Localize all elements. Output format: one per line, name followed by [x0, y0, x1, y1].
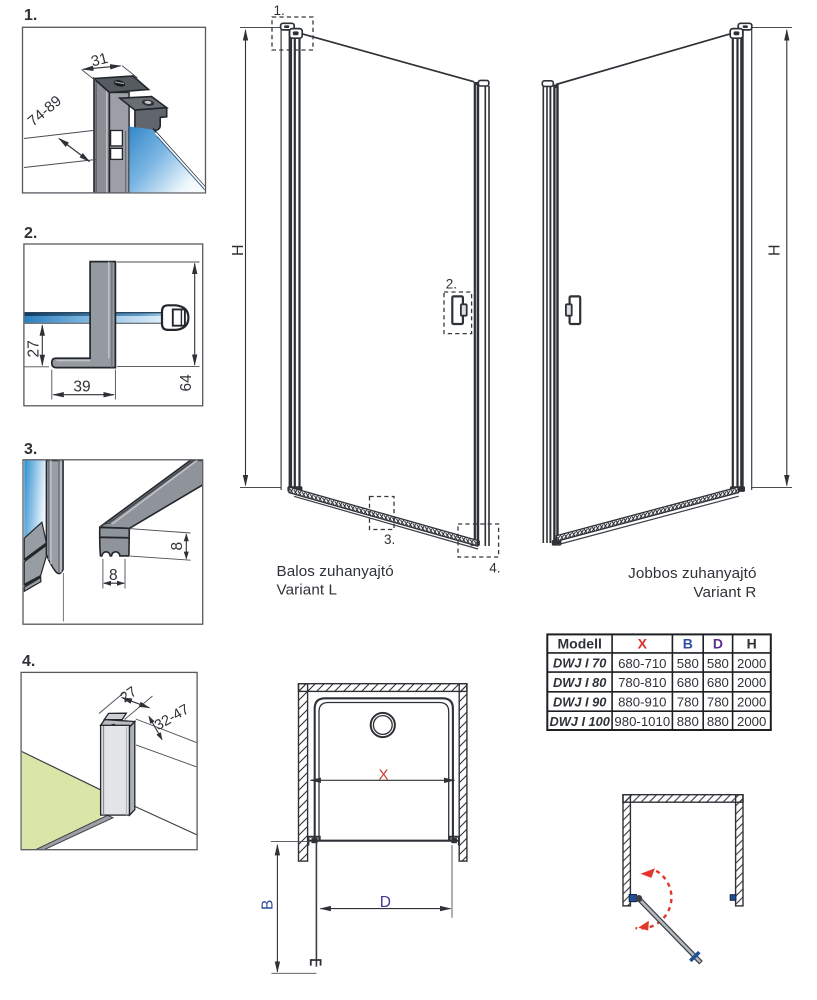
svg-text:Jobbos zuhanyajtó: Jobbos zuhanyajtó — [628, 565, 756, 582]
svg-text:2000: 2000 — [737, 675, 766, 690]
svg-text:X: X — [379, 767, 389, 784]
svg-text:H: H — [230, 244, 247, 256]
svg-text:4.: 4. — [489, 561, 500, 576]
svg-text:2.: 2. — [24, 225, 37, 242]
svg-text:DWJ I 100: DWJ I 100 — [549, 714, 609, 729]
svg-text:1.: 1. — [24, 7, 37, 24]
svg-text:64: 64 — [178, 374, 195, 392]
svg-text:D: D — [713, 636, 723, 652]
svg-text:2.: 2. — [446, 277, 457, 292]
svg-text:DWJ I 90: DWJ I 90 — [553, 695, 606, 710]
svg-text:980-1010: 980-1010 — [614, 714, 670, 729]
svg-text:680-710: 680-710 — [618, 656, 666, 671]
svg-text:880: 880 — [677, 714, 699, 729]
svg-text:2000: 2000 — [737, 656, 766, 671]
svg-text:DWJ I 80: DWJ I 80 — [553, 675, 606, 690]
svg-text:580: 580 — [677, 656, 699, 671]
svg-text:880-910: 880-910 — [618, 695, 666, 710]
svg-text:2000: 2000 — [737, 695, 766, 710]
svg-text:2000: 2000 — [737, 714, 766, 729]
svg-text:3.: 3. — [384, 532, 395, 547]
svg-text:B: B — [260, 900, 277, 910]
svg-text:Variant R: Variant R — [693, 584, 756, 601]
svg-text:8: 8 — [109, 567, 118, 584]
svg-text:680: 680 — [677, 675, 699, 690]
svg-text:4.: 4. — [22, 653, 35, 670]
svg-text:B: B — [683, 636, 693, 652]
svg-text:DWJ I 70: DWJ I 70 — [553, 656, 606, 671]
svg-text:580: 580 — [707, 656, 729, 671]
svg-text:1.: 1. — [274, 3, 285, 18]
svg-text:H: H — [747, 636, 757, 652]
svg-text:Variant L: Variant L — [277, 582, 338, 599]
svg-text:780: 780 — [677, 695, 699, 710]
svg-text:D: D — [380, 894, 391, 911]
svg-text:X: X — [638, 636, 648, 652]
svg-text:27: 27 — [26, 340, 43, 357]
svg-text:780-810: 780-810 — [618, 675, 666, 690]
svg-text:680: 680 — [707, 675, 729, 690]
svg-text:39: 39 — [73, 379, 90, 396]
svg-text:8: 8 — [169, 542, 186, 551]
svg-text:H: H — [767, 244, 784, 256]
svg-text:3.: 3. — [24, 441, 37, 458]
svg-text:Balos zuhanyajtó: Balos zuhanyajtó — [277, 563, 394, 580]
svg-text:780: 780 — [707, 695, 729, 710]
svg-text:Modell: Modell — [558, 636, 602, 652]
svg-text:880: 880 — [707, 714, 729, 729]
